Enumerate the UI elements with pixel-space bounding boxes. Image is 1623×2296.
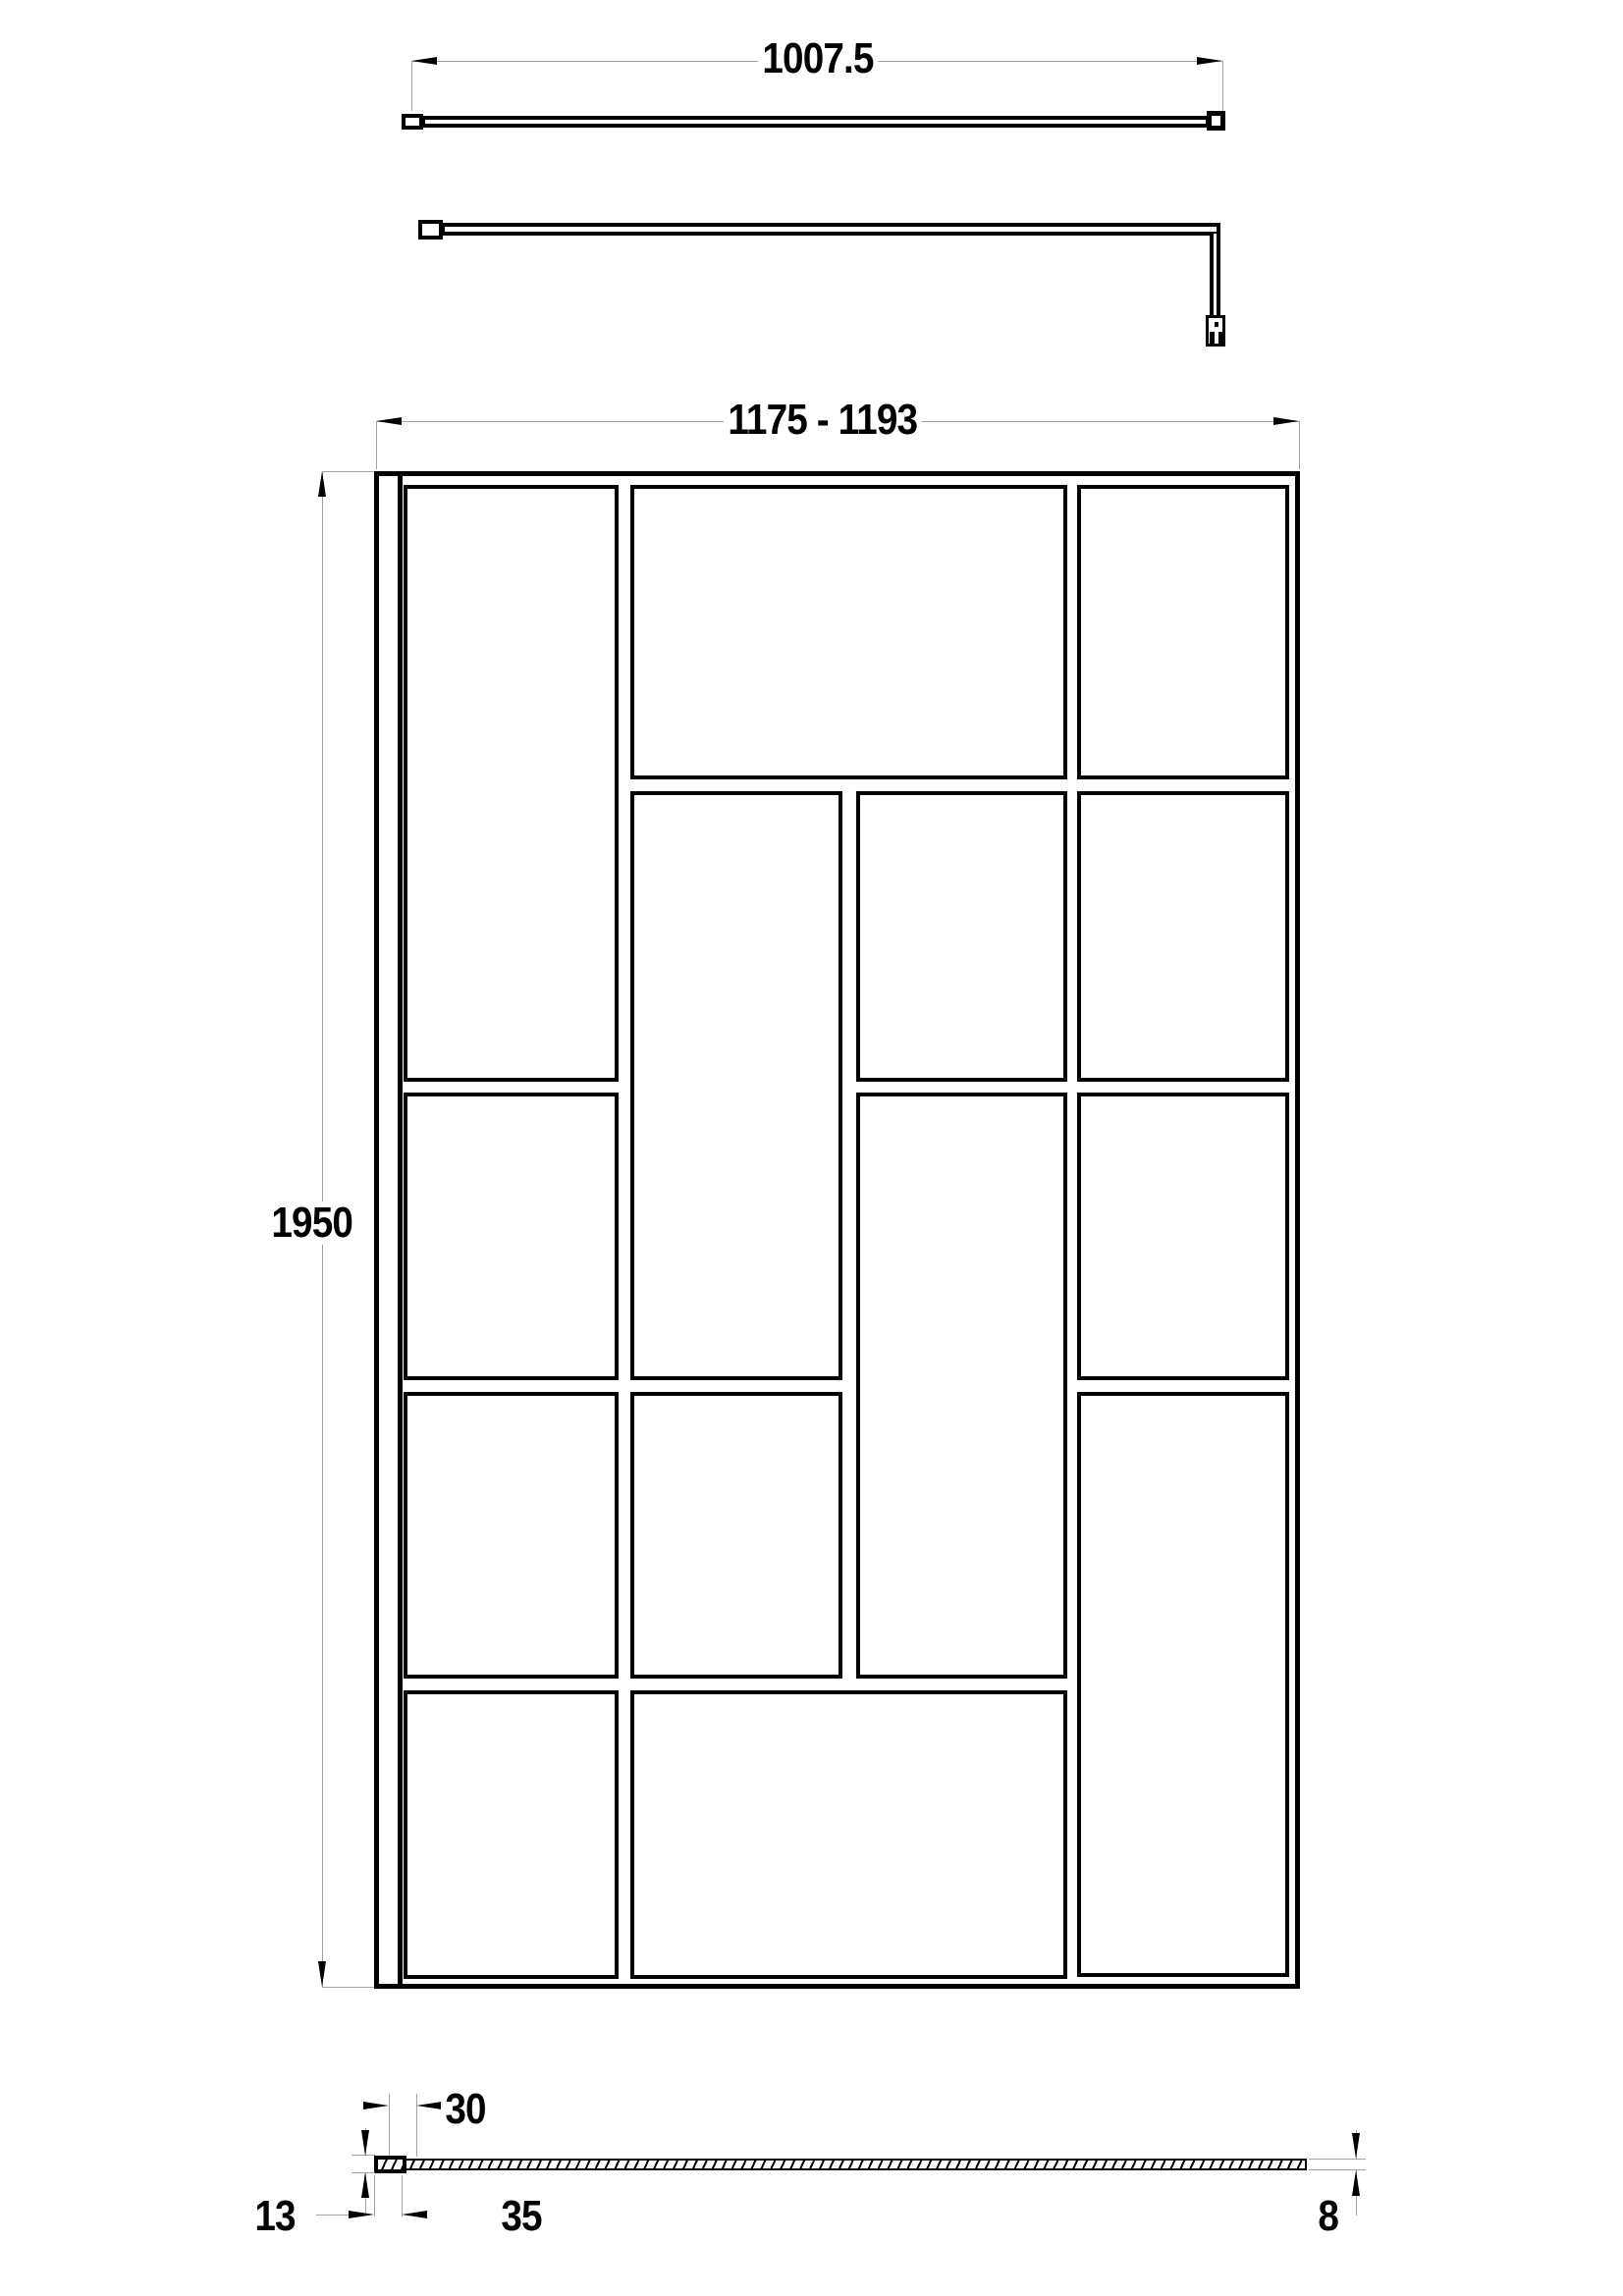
extension-line [411,61,412,111]
dimension-arrow-up-icon [361,2172,369,2198]
extension-line [1309,2159,1366,2160]
glass-thickness-label: 8 [1314,2195,1342,2238]
dimension-arrow-left-icon [411,57,437,65]
dimension-arrow-right-icon [363,2102,389,2109]
profile-base-label: 35 [497,2195,546,2238]
screen-width-label: 1175 - 1193 [724,399,922,442]
dimension-arrow-right-icon [349,2211,374,2218]
glass-pane [404,1392,619,1679]
glass-panel-section [404,2159,1307,2170]
dimension-arrow-left-icon [402,2211,427,2218]
dimension-arrow-right-icon [1197,57,1222,65]
screen-height-label: 1950 [267,1201,356,1245]
glass-pane [856,791,1067,1082]
extension-line [376,421,377,469]
clamp-leg-right [1218,332,1224,344]
support-bar-glass-clamp [1206,315,1225,347]
extension-line [374,2175,375,2216]
clamp-leg-left [1210,332,1215,344]
glass-pane [630,485,1067,779]
glass-pane [856,1093,1067,1679]
dimension-arrow-left-icon [376,417,402,425]
glass-pane [1077,1392,1289,1977]
dimension-arrow-down-icon [361,2130,369,2156]
support-bar-end-clamp-top-view [1207,111,1225,131]
support-bar-wall-block-top-view [402,114,423,130]
glass-pane [1077,791,1289,1082]
glass-pane [630,791,842,1380]
profile-height-label: 13 [250,2195,299,2238]
glass-pane [630,1392,842,1679]
wall-channel-section [374,2156,406,2173]
glass-pane [404,1093,619,1380]
extension-line [389,2094,390,2157]
glass-pane [1077,485,1289,779]
extension-line [1299,421,1300,469]
glass-pane [630,1690,1067,1979]
support-bar-drop-arm [1210,234,1220,317]
glass-pane [1077,1093,1289,1380]
extension-line [322,471,374,472]
dimension-arrow-left-icon [416,2102,442,2109]
technical-drawing-canvas: 1007.5 1175 - 1193 1950 30 [0,0,1623,2296]
glass-pane [404,1690,619,1979]
dimension-arrow-up-icon [318,471,326,497]
profile-width-label: 30 [441,2088,490,2131]
glass-pane [404,485,619,1082]
support-bar-top-view [421,116,1210,128]
support-bar-side-view [441,223,1220,236]
dimension-arrow-down-icon [1352,2133,1360,2159]
clamp-screw-dot [1215,322,1218,327]
dimension-arrow-up-icon [1352,2170,1360,2196]
bar-length-label: 1007.5 [758,37,878,80]
support-bar-wall-block-side-view [418,220,443,240]
dimension-arrow-right-icon [1273,417,1299,425]
extension-line [322,1987,374,1988]
dimension-arrow-down-icon [318,1961,326,1987]
